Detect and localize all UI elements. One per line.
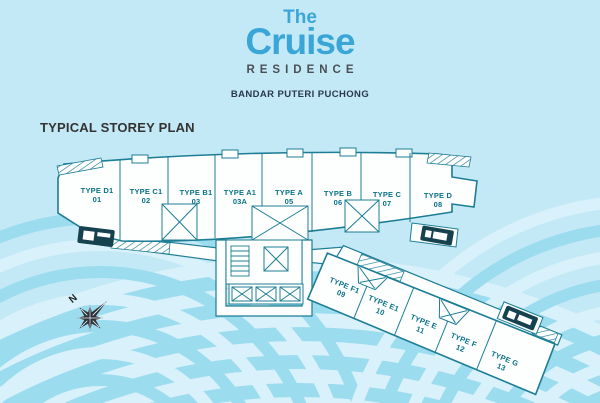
brand-residence: RESIDENCE: [231, 64, 369, 76]
staircase-icon: [231, 246, 249, 276]
unit-label-type: TYPE D: [424, 191, 453, 200]
unit-label-type: TYPE C1: [130, 187, 163, 196]
unit-label-no: 02: [142, 196, 151, 205]
unit-label-no: 05: [285, 197, 294, 206]
unit-label-type: TYPE C: [373, 190, 402, 199]
unit-label-type: TYPE B1: [180, 188, 213, 197]
unit-label-no: 01: [93, 195, 102, 204]
brand-location: BANDAR PUTERI PUCHONG: [231, 89, 369, 100]
brand-cruise: Cruise: [231, 26, 369, 57]
unit-label-type: TYPE D1: [81, 186, 114, 195]
core-lift-icon: [264, 247, 288, 271]
unit-label-type: TYPE B: [324, 189, 353, 198]
lift-bank: [229, 284, 303, 304]
page-title: TYPICAL STOREY PLAN: [40, 120, 195, 135]
unit-label-no: 03: [192, 197, 201, 206]
unit-label-type: TYPE A1: [224, 188, 256, 197]
brand-logo: The Cruise RESIDENCE BANDAR PUTERI PUCHO…: [231, 9, 369, 100]
unit-label-type: TYPE A: [275, 188, 303, 197]
unit-label-no: 08: [434, 200, 443, 209]
unit-label-no: 03A: [233, 197, 248, 206]
unit-label-no: 07: [383, 199, 392, 208]
unit-label-no: 06: [334, 198, 343, 207]
page: TYPE F1 09 TYPE E1 10 TYPE E 11 TYPE F 1…: [0, 0, 600, 403]
